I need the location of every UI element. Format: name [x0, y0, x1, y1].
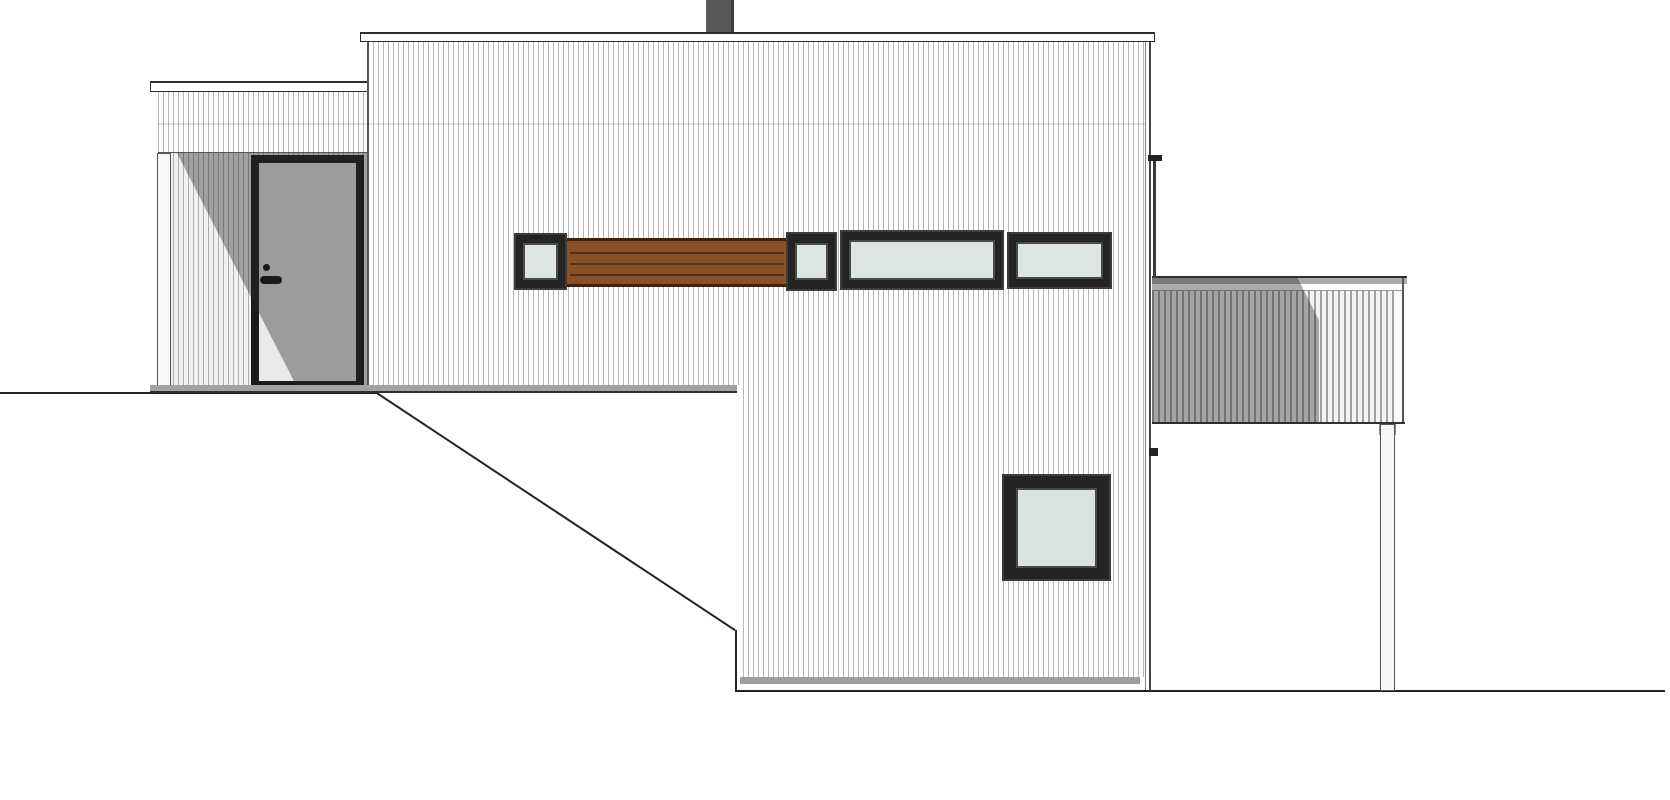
terrain-cut-line: [735, 630, 737, 692]
floor-level-shadow-line: [158, 123, 1146, 125]
main-wall-right-corner-line-inner: [1145, 42, 1146, 690]
main-wall-corner-line: [367, 42, 369, 385]
main-roof-fascia: [360, 32, 1155, 42]
band-window-4-glass: [1016, 242, 1103, 279]
band-window-3-glass: [849, 240, 995, 280]
band-window-1-glass: [523, 243, 558, 280]
wood-slat-line-2: [570, 263, 784, 265]
terrain-slope-line: [376, 392, 736, 631]
main-wall: [368, 42, 1146, 677]
chimney: [706, 0, 734, 34]
porch-sill-strip: [150, 385, 737, 393]
left-roof-fascia: [150, 81, 368, 92]
deck-post: [1380, 424, 1395, 691]
downspout-pipe: [1153, 161, 1156, 278]
lower-window-glass: [1016, 488, 1097, 568]
house-side-elevation-drawing: [0, 0, 1670, 800]
wood-slat-line-3: [570, 274, 784, 276]
band-window-2-glass: [795, 243, 828, 280]
ground-line-lower: [736, 690, 1665, 692]
deck-shadow: [1152, 277, 1319, 424]
downspout-bracket-lower: [1149, 448, 1158, 456]
main-wall-right-corner-line: [1149, 42, 1151, 691]
deck-railing-right-edge: [1402, 278, 1404, 424]
porch-post: [157, 153, 171, 387]
wood-slat-line-1: [570, 252, 784, 254]
foundation-strip: [740, 677, 1140, 684]
